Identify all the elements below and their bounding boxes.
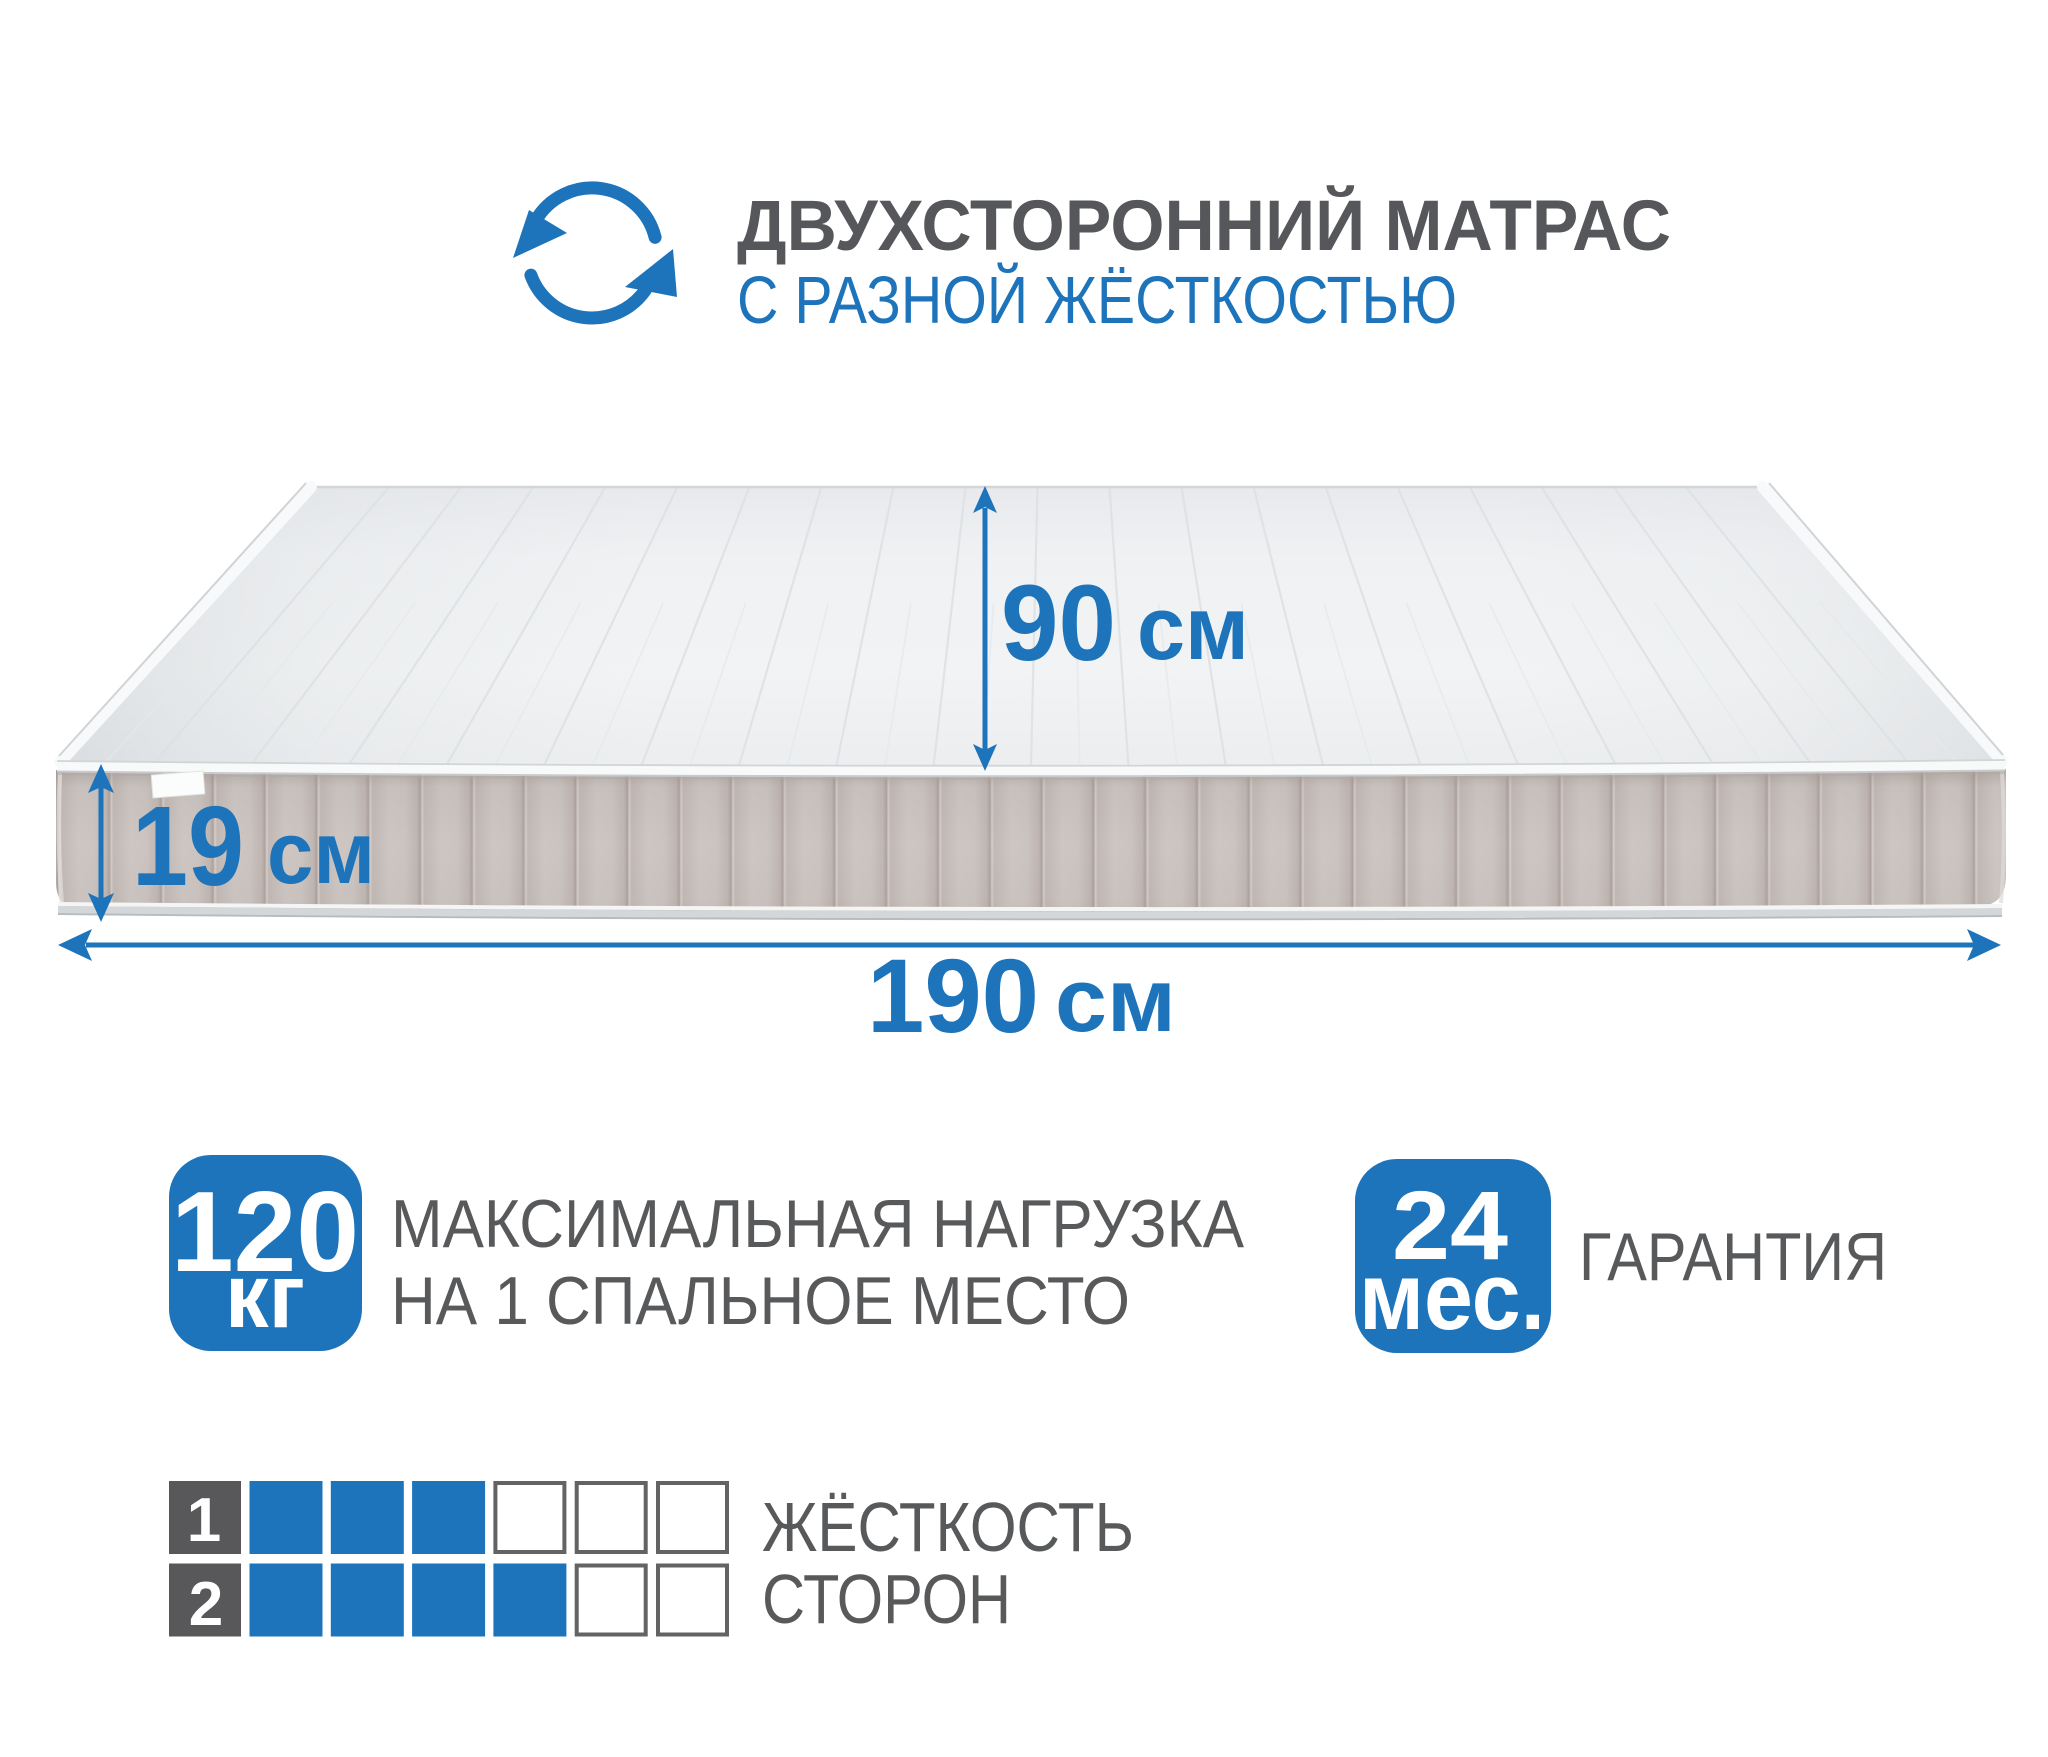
svg-text:2: 2 xyxy=(189,1570,223,1639)
svg-text:мес.: мес. xyxy=(1359,1243,1545,1350)
svg-text:кг: кг xyxy=(225,1246,305,1347)
svg-text:ГАРАНТИЯ: ГАРАНТИЯ xyxy=(1579,1219,1887,1295)
svg-text:НА 1 СПАЛЬНОЕ МЕСТО: НА 1 СПАЛЬНОЕ МЕСТО xyxy=(391,1263,1130,1339)
svg-text:МАКСИМАЛЬНАЯ НАГРУЗКА: МАКСИМАЛЬНАЯ НАГРУЗКА xyxy=(391,1186,1245,1262)
svg-text:СТОРОН: СТОРОН xyxy=(762,1560,1011,1638)
svg-text:см: см xyxy=(1055,951,1176,1051)
svg-text:ЖЁСТКОСТЬ: ЖЁСТКОСТЬ xyxy=(762,1488,1134,1566)
svg-text:см: см xyxy=(267,803,375,902)
svg-text:19: 19 xyxy=(132,783,244,909)
svg-text:90: 90 xyxy=(1001,562,1116,683)
svg-text:190: 190 xyxy=(867,938,1039,1055)
svg-text:ДВУХСТОРОННИЙ МАТРАС: ДВУХСТОРОННИЙ МАТРАС xyxy=(737,186,1671,266)
svg-text:1: 1 xyxy=(187,1486,221,1555)
svg-text:С РАЗНОЙ ЖЁСТКОСТЬЮ: С РАЗНОЙ ЖЁСТКОСТЬЮ xyxy=(737,262,1457,338)
svg-text:см: см xyxy=(1137,579,1249,679)
